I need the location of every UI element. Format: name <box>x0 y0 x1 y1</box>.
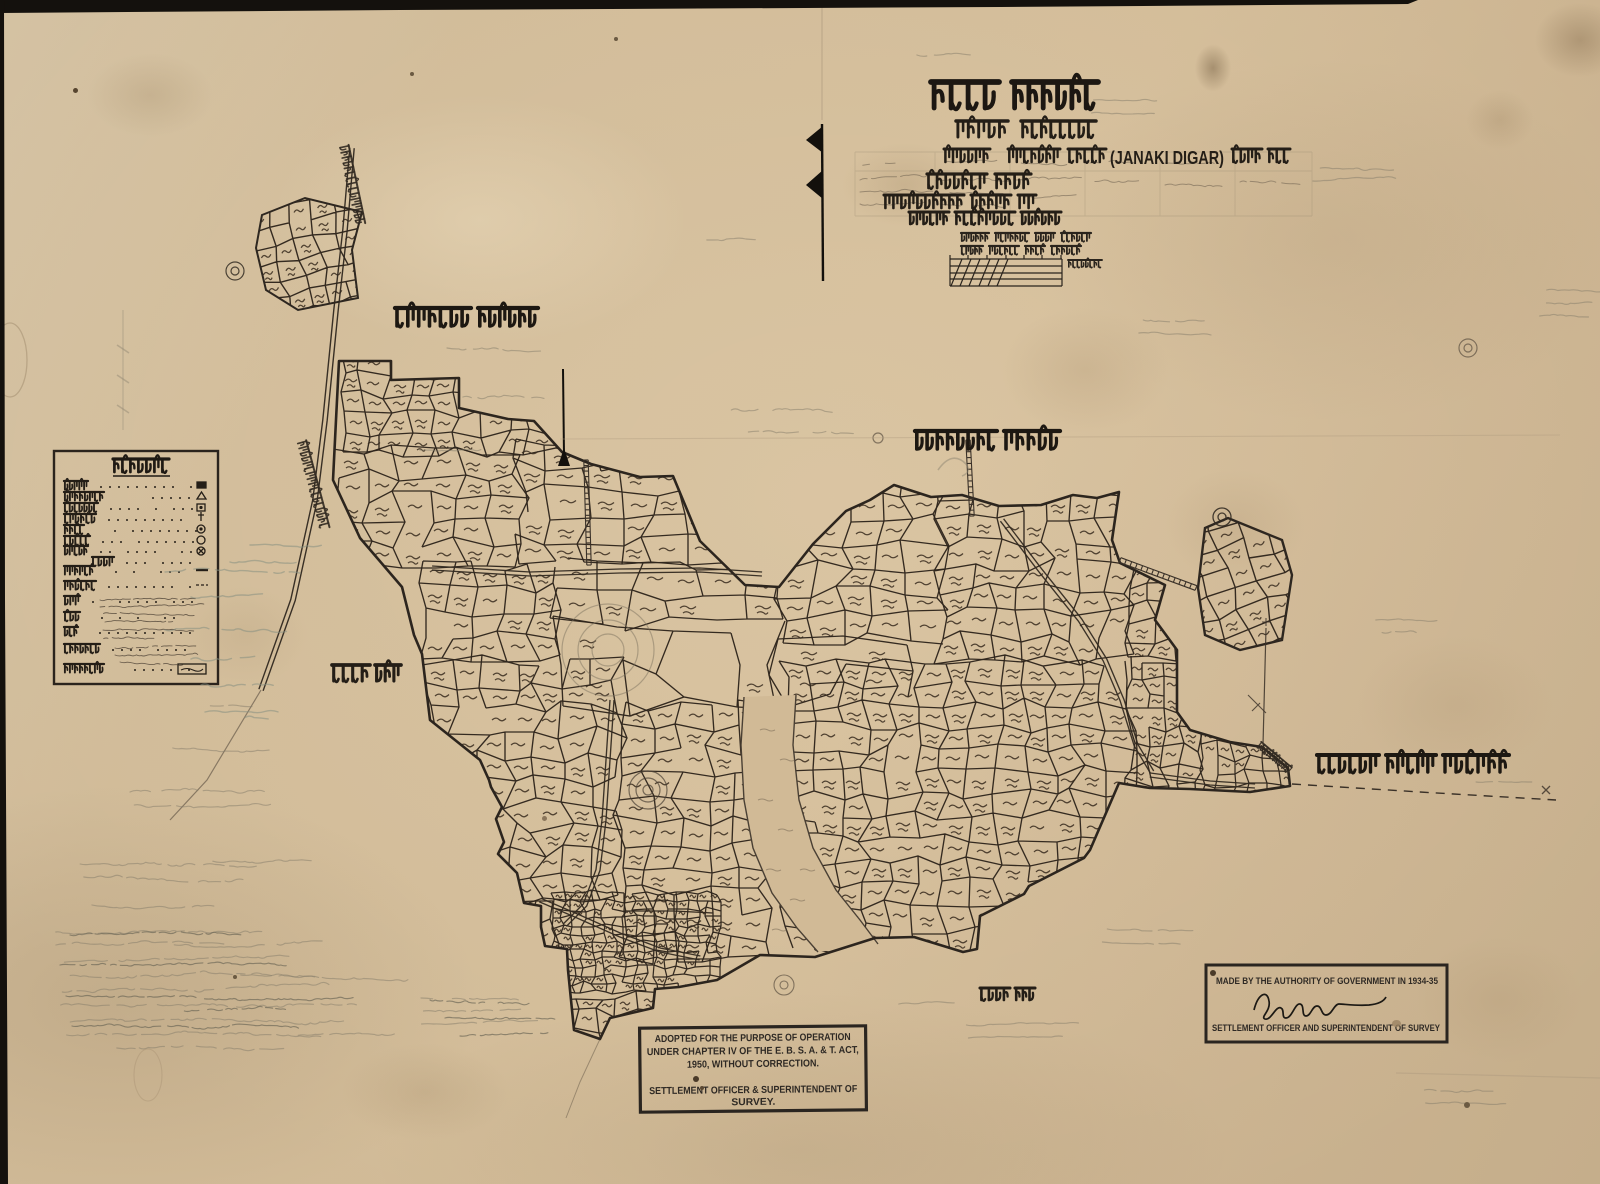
svg-text:(JANAKI DIGAR): (JANAKI DIGAR) <box>1110 147 1224 168</box>
svg-text:ADOPTED FOR THE PURPOSE OF OPE: ADOPTED FOR THE PURPOSE OF OPERATION <box>655 1032 851 1045</box>
svg-text:SETTLEMENT OFFICER & SUPERINTE: SETTLEMENT OFFICER & SUPERINTENDENT OF <box>649 1084 857 1097</box>
svg-text:1950, WITHOUT CORRECTION.: 1950, WITHOUT CORRECTION. <box>687 1058 819 1070</box>
svg-text:UNDER CHAPTER IV OF THE E. B.: UNDER CHAPTER IV OF THE E. B. S. A. & T.… <box>647 1045 859 1058</box>
svg-text:MADE BY THE AUTHORITY OF GOVER: MADE BY THE AUTHORITY OF GOVERNMENT IN 1… <box>1216 976 1439 987</box>
svg-text:SURVEY.: SURVEY. <box>731 1097 775 1108</box>
svg-text:SETTLEMENT OFFICER AND SUPERI: SETTLEMENT OFFICER AND SUPERINTENDENT OF… <box>1212 1023 1440 1033</box>
